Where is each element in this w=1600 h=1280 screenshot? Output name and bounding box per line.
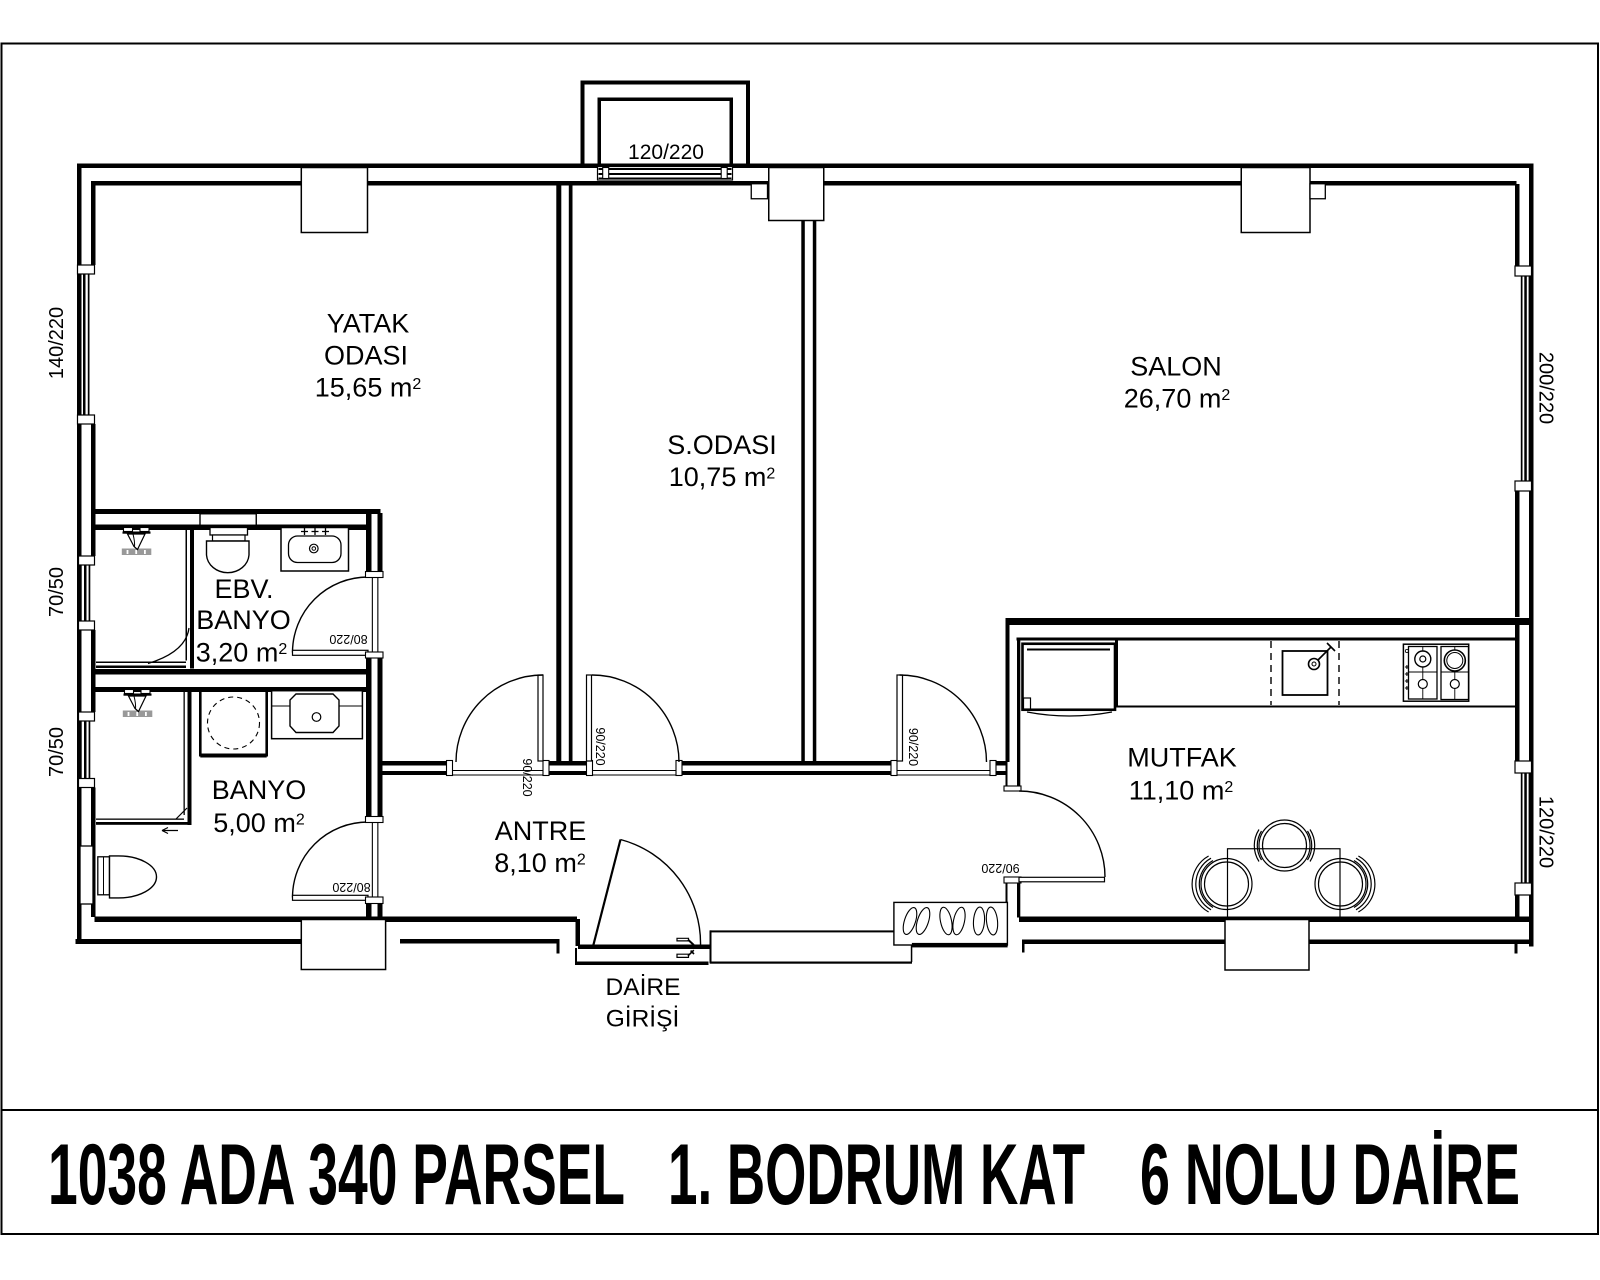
svg-text:120/220: 120/220 [1535, 796, 1557, 868]
svg-text:120/220: 120/220 [628, 141, 704, 164]
svg-text:90/220: 90/220 [593, 727, 607, 765]
svg-text:BANYO: BANYO [196, 605, 291, 635]
svg-text:5,00 m2: 5,00 m2 [213, 808, 305, 838]
svg-text:70/50: 70/50 [46, 727, 68, 777]
svg-text:SALON: SALON [1130, 352, 1222, 382]
svg-text:8,10 m2: 8,10 m2 [494, 848, 586, 878]
svg-text:6 NOLU DAİRE: 6 NOLU DAİRE [1140, 1127, 1520, 1223]
svg-text:200/220: 200/220 [1535, 352, 1557, 424]
svg-text:140/220: 140/220 [46, 307, 68, 379]
svg-text:11,10 m2: 11,10 m2 [1129, 776, 1234, 806]
svg-text:90/220: 90/220 [520, 758, 534, 796]
svg-text:3,20 m2: 3,20 m2 [196, 638, 288, 668]
svg-text:15,65 m2: 15,65 m2 [315, 373, 422, 403]
svg-text:ODASI: ODASI [324, 341, 408, 371]
svg-text:EBV.: EBV. [214, 574, 273, 604]
svg-text:GİRİŞİ: GİRİŞİ [606, 1006, 680, 1033]
svg-text:10,75 m2: 10,75 m2 [669, 462, 776, 492]
svg-text:ANTRE: ANTRE [495, 816, 587, 846]
svg-text:80/220: 80/220 [332, 880, 370, 894]
svg-text:S.ODASI: S.ODASI [667, 430, 777, 460]
svg-text:26,70 m2: 26,70 m2 [1124, 384, 1231, 414]
svg-text:MUTFAK: MUTFAK [1127, 743, 1237, 773]
svg-text:70/50: 70/50 [46, 567, 68, 617]
svg-text:BANYO: BANYO [212, 775, 307, 805]
svg-text:DAİRE: DAİRE [606, 974, 681, 1001]
svg-text:90/220: 90/220 [981, 861, 1019, 875]
svg-text:YATAK: YATAK [327, 309, 410, 339]
svg-text:1038 ADA 340 PARSEL: 1038 ADA 340 PARSEL [48, 1127, 625, 1223]
svg-text:80/220: 80/220 [329, 632, 367, 646]
svg-text:1. BODRUM KAT: 1. BODRUM KAT [668, 1127, 1085, 1223]
svg-text:90/220: 90/220 [906, 728, 920, 766]
